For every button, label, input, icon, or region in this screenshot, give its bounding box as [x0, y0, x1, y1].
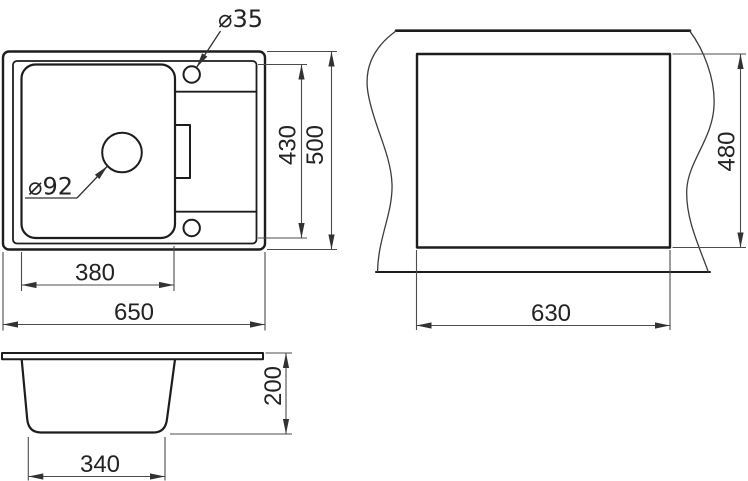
faucet-hole-diameter-label: ⌀35	[218, 5, 263, 33]
dimension-label: 650	[114, 299, 154, 326]
side-view: 200 340	[2, 353, 292, 481]
dimension-label: 630	[531, 300, 571, 327]
drain-leader-line	[77, 166, 108, 198]
faucet-hole-top	[184, 66, 200, 82]
sink-inner-rim	[13, 61, 257, 244]
dimension-label: 380	[75, 260, 115, 287]
top-view: ⌀35 ⌀92 430 500 380	[3, 5, 337, 331]
sink-outer-outline	[3, 52, 265, 250]
dimension-label: 340	[80, 451, 120, 478]
dimension-cutout-width-630: 630	[417, 250, 671, 330]
countertop-break-line-right	[687, 31, 714, 273]
dimension-bowl-width-380: 380	[22, 246, 175, 291]
dimension-label: 430	[275, 125, 302, 165]
bowl-outline	[22, 65, 176, 239]
faucet-hole-bottom	[184, 220, 200, 236]
dimension-label: 500	[302, 125, 329, 165]
dimension-overall-width-650: 650	[3, 252, 265, 331]
dimension-cutout-depth-480: 480	[673, 54, 747, 248]
sink-rim-flange	[2, 353, 263, 359]
dimension-bowl-height-200: 200	[170, 353, 292, 434]
cutout-rectangle	[417, 54, 670, 248]
drain-hole	[102, 133, 142, 173]
faucet-hole-leader-line	[197, 31, 221, 68]
cutout-view: 480 630	[367, 31, 746, 330]
countertop-break-line-left	[367, 31, 396, 272]
bowl-profile	[22, 360, 175, 433]
dimension-label: 200	[260, 366, 287, 406]
drawing-svg: ⌀35 ⌀92 430 500 380	[0, 0, 748, 481]
dimension-bowl-bottom-340: 340	[28, 437, 165, 481]
dimension-label: 480	[714, 131, 741, 171]
technical-drawing: ⌀35 ⌀92 430 500 380	[0, 0, 748, 481]
overflow-notch	[175, 125, 190, 178]
drain-diameter-label: ⌀92	[28, 173, 73, 201]
